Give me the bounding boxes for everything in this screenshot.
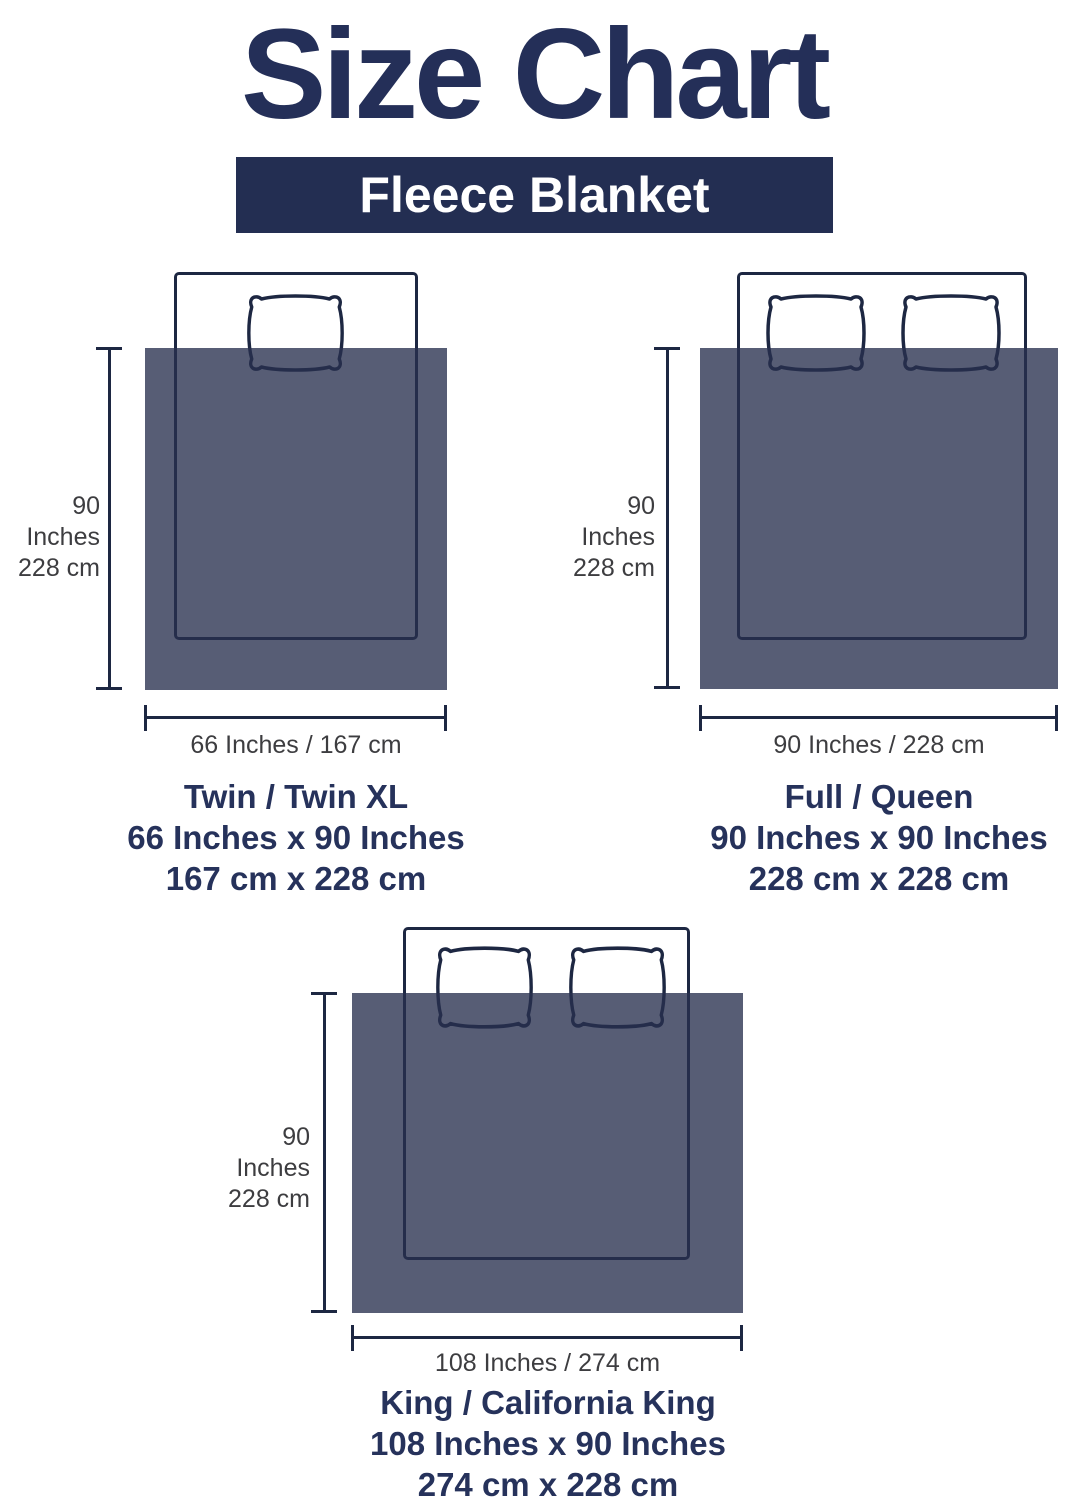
height-dimension-cap-top — [654, 347, 680, 350]
size-name: King / California King — [328, 1382, 768, 1423]
product-banner-label: Fleece Blanket — [236, 157, 833, 233]
size-name: Full / Queen — [659, 776, 1068, 817]
width-label: 66 Inches / 167 cm — [125, 730, 467, 761]
height-label-cm: 228 cm — [0, 553, 100, 584]
blanket-overlay — [352, 993, 743, 1313]
height-label: 90 Inches 228 cm — [0, 491, 100, 584]
height-dimension-line — [108, 348, 111, 690]
size-name: Twin / Twin XL — [76, 776, 516, 817]
height-label-inches: 90 Inches — [208, 1122, 310, 1184]
width-dimension-cap-left — [699, 705, 702, 731]
product-banner: Fleece Blanket — [236, 157, 833, 233]
size-dimensions-cm: 228 cm x 228 cm — [659, 858, 1068, 899]
size-caption: Full / Queen 90 Inches x 90 Inches 228 c… — [659, 776, 1068, 899]
size-caption: King / California King 108 Inches x 90 I… — [328, 1382, 768, 1500]
size-dimensions-inches: 66 Inches x 90 Inches — [76, 817, 516, 858]
size-dimensions-cm: 274 cm x 228 cm — [328, 1464, 768, 1500]
size-chart-page: Size Chart Fleece Blanket 90 Inches 228 … — [0, 0, 1068, 1500]
width-label: 108 Inches / 274 cm — [332, 1348, 763, 1379]
height-dimension-cap-bottom — [654, 686, 680, 689]
width-dimension-line — [145, 716, 447, 719]
height-dimension-cap-bottom — [96, 687, 122, 690]
size-dimensions-inches: 90 Inches x 90 Inches — [659, 817, 1068, 858]
height-label-cm: 228 cm — [553, 553, 655, 584]
height-dimension-cap-top — [311, 992, 337, 995]
height-dimension-cap-bottom — [311, 1310, 337, 1313]
size-caption: Twin / Twin XL 66 Inches x 90 Inches 167… — [76, 776, 516, 899]
height-label: 90 Inches 228 cm — [208, 1122, 310, 1215]
width-dimension-cap-right — [1055, 705, 1058, 731]
width-dimension-line — [700, 716, 1058, 719]
width-label: 90 Inches / 228 cm — [700, 730, 1058, 761]
height-label-inches: 90 Inches — [553, 491, 655, 553]
width-dimension-cap-left — [144, 705, 147, 731]
width-dimension-line — [352, 1336, 743, 1339]
size-dimensions-cm: 167 cm x 228 cm — [76, 858, 516, 899]
height-dimension-line — [666, 348, 669, 689]
width-dimension-cap-right — [444, 705, 447, 731]
blanket-overlay — [700, 348, 1058, 689]
height-dimension-line — [323, 993, 326, 1313]
blanket-overlay — [145, 348, 447, 690]
height-label-inches: 90 Inches — [0, 491, 100, 553]
page-title: Size Chart — [0, 0, 1068, 155]
height-label-cm: 228 cm — [208, 1184, 310, 1215]
size-dimensions-inches: 108 Inches x 90 Inches — [328, 1423, 768, 1464]
height-dimension-cap-top — [96, 347, 122, 350]
height-label: 90 Inches 228 cm — [553, 491, 655, 584]
